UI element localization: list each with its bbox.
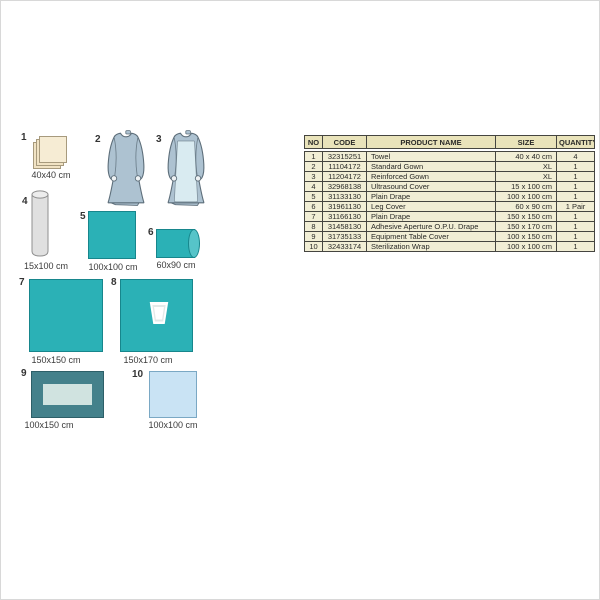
item-number-10: 10 <box>132 370 143 380</box>
item-size-label-5: 100x100 cm <box>85 262 141 272</box>
table-cell: XL <box>496 162 557 172</box>
table-row: 311204172Reinforced GownXL1 <box>305 172 595 182</box>
table-cell: XL <box>496 172 557 182</box>
table-cell: 150 x 170 cm <box>496 222 557 232</box>
table-row: 132315251Towel40 x 40 cm4 <box>305 152 595 162</box>
table-cell: 60 x 90 cm <box>496 202 557 212</box>
table-row: 931735133Equipment Table Cover100 x 150 … <box>305 232 595 242</box>
item-size-label-8: 150x170 cm <box>119 355 177 365</box>
leg-cover-end-graphic <box>188 229 200 258</box>
item-number-1: 1 <box>21 133 27 143</box>
table-cell: Standard Gown <box>367 162 496 172</box>
table-row: 531133130Plain Drape100 x 100 cm1 <box>305 192 595 202</box>
table-row: 631961130Leg Cover60 x 90 cm1 Pair <box>305 202 595 212</box>
table-cell: Adhesive Aperture O.P.U. Drape <box>367 222 496 232</box>
table-cell: 9 <box>305 232 323 242</box>
table-row: 731166130Plain Drape150 x 150 cm1 <box>305 212 595 222</box>
sterilization-wrap-graphic <box>149 371 197 418</box>
table-cell: 4 <box>557 152 595 162</box>
table-cell: 10 <box>305 242 323 252</box>
table-cell: Ultrasound Cover <box>367 182 496 192</box>
spec-table: NOCODEPRODUCT NAMESIZEQUANTITY 132315251… <box>304 135 595 252</box>
table-cell: Sterilization Wrap <box>367 242 496 252</box>
ultrasound-cover-graphic <box>30 189 50 259</box>
table-cell: 31133130 <box>323 192 367 202</box>
table-cell: Reinforced Gown <box>367 172 496 182</box>
table-cell: 7 <box>305 212 323 222</box>
table-cell: 1 <box>557 172 595 182</box>
item-number-2: 2 <box>95 135 101 145</box>
table-cell: 1 <box>557 192 595 202</box>
item-number-5: 5 <box>80 212 86 222</box>
table-header-cell: CODE <box>323 136 367 149</box>
table-cell: 1 <box>557 162 595 172</box>
table-cell: 1 <box>557 242 595 252</box>
item-number-9: 9 <box>21 369 27 379</box>
table-cell: 15 x 100 cm <box>496 182 557 192</box>
table-cell: 31735133 <box>323 232 367 242</box>
table-cell: 1 <box>557 182 595 192</box>
table-cell: 3 <box>305 172 323 182</box>
table-cell: 8 <box>305 222 323 232</box>
item-size-label-10: 100x100 cm <box>144 420 202 430</box>
table-cover-reinforcement <box>43 384 92 405</box>
item-number-6: 6 <box>148 228 154 238</box>
table-cell: 31961130 <box>323 202 367 212</box>
table-row: 1032433174Sterilization Wrap100 x 100 cm… <box>305 242 595 252</box>
table-header-cell: SIZE <box>496 136 557 149</box>
table-cell: 32433174 <box>323 242 367 252</box>
table-cell: Towel <box>367 152 496 162</box>
item-number-4: 4 <box>22 197 28 207</box>
table-cell: 150 x 150 cm <box>496 212 557 222</box>
table-cell: 100 x 100 cm <box>496 192 557 202</box>
table-cell: 6 <box>305 202 323 212</box>
table-row: 211104172Standard GownXL1 <box>305 162 595 172</box>
item-size-label-4: 15x100 cm <box>15 261 77 271</box>
table-cell: 1 <box>305 152 323 162</box>
product-spec-sheet: 1 40x40 cm 2 3 4 15x100 cm 5 100x100 cm … <box>0 0 600 600</box>
table-row: 831458130Adhesive Aperture O.P.U. Drape1… <box>305 222 595 232</box>
table-cell: 31458130 <box>323 222 367 232</box>
item-number-7: 7 <box>19 278 25 288</box>
table-cell: 1 <box>557 232 595 242</box>
table-cell: 11104172 <box>323 162 367 172</box>
table-cell: 40 x 40 cm <box>496 152 557 162</box>
plain-drape-100-graphic <box>88 211 136 259</box>
table-cell: 32315251 <box>323 152 367 162</box>
table-header-cell: NO <box>305 136 323 149</box>
item-number-8: 8 <box>111 278 117 288</box>
reinforced-gown-graphic <box>161 129 211 207</box>
table-cell: Plain Drape <box>367 192 496 202</box>
towel-sheet-front <box>39 136 67 163</box>
standard-gown-graphic <box>101 129 151 207</box>
table-cell: Equipment Table Cover <box>367 232 496 242</box>
spec-table-container: NOCODEPRODUCT NAMESIZEQUANTITY 132315251… <box>304 135 594 252</box>
table-cell: 31166130 <box>323 212 367 222</box>
table-cell: 2 <box>305 162 323 172</box>
table-cell: 4 <box>305 182 323 192</box>
table-row: 432968138Ultrasound Cover15 x 100 cm1 <box>305 182 595 192</box>
item-size-label-9: 100x150 cm <box>19 420 79 430</box>
table-cell: 5 <box>305 192 323 202</box>
table-cell: 100 x 100 cm <box>496 242 557 252</box>
item-size-label-6: 60x90 cm <box>151 260 201 270</box>
item-size-label-1: 40x40 cm <box>25 170 77 180</box>
item-size-label-7: 150x150 cm <box>27 355 85 365</box>
table-header-cell: PRODUCT NAME <box>367 136 496 149</box>
table-cell: 32968138 <box>323 182 367 192</box>
table-cell: Leg Cover <box>367 202 496 212</box>
table-cell: 11204172 <box>323 172 367 182</box>
table-cell: 100 x 150 cm <box>496 232 557 242</box>
table-header-cell: QUANTITY <box>557 136 595 149</box>
plain-drape-150-graphic <box>29 279 103 352</box>
table-cell: 1 <box>557 222 595 232</box>
table-cell: 1 Pair <box>557 202 595 212</box>
table-header-row: NOCODEPRODUCT NAMESIZEQUANTITY <box>305 136 595 149</box>
table-cell: Plain Drape <box>367 212 496 222</box>
table-cell: 1 <box>557 212 595 222</box>
